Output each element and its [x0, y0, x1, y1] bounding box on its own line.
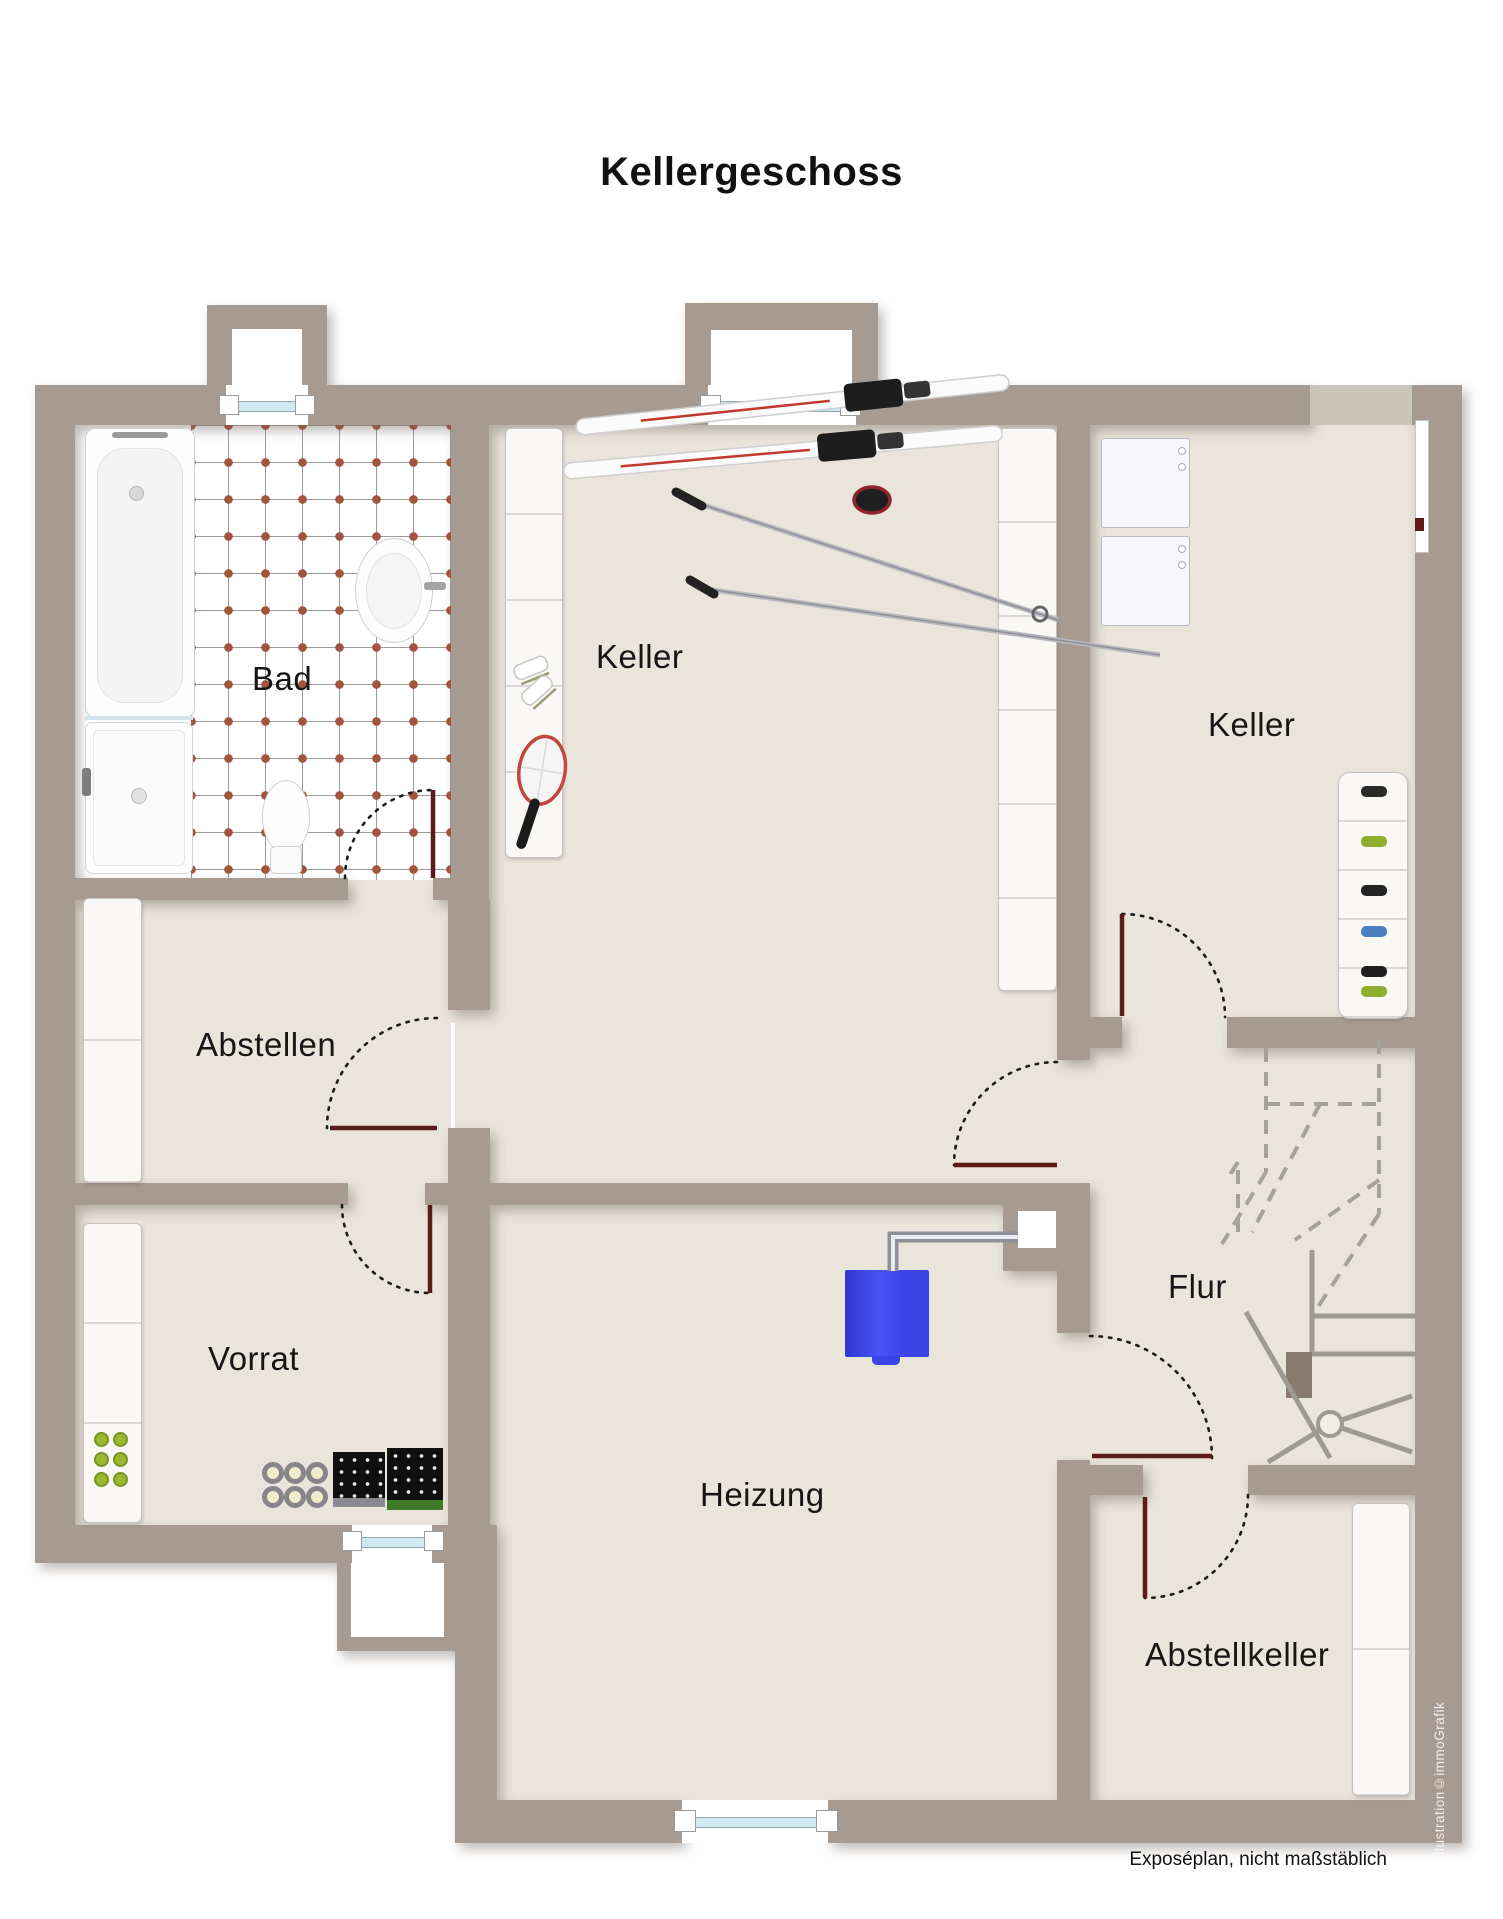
- lightshaft-vorrat-inner: [351, 1563, 444, 1637]
- bathtub-faucet-icon: [112, 432, 168, 438]
- jar-icon: [113, 1472, 128, 1487]
- room-label-abstellkeller: Abstellkeller: [1145, 1636, 1329, 1674]
- room-label-keller-mitte: Keller: [596, 638, 683, 676]
- room-label-flur: Flur: [1168, 1268, 1227, 1306]
- shelf-keller-right: [998, 428, 1057, 991]
- window-bad-glass: [229, 401, 305, 412]
- room-label-vorrat: Vorrat: [208, 1340, 299, 1378]
- shoes-green-icon: [1345, 985, 1403, 1003]
- boiler-tab: [872, 1356, 900, 1365]
- illustrator-watermark: illustration©immoGrafik: [1432, 1608, 1447, 1858]
- shoes-green-icon: [1345, 835, 1403, 853]
- window-heizung-jamb-right: [816, 1810, 838, 1832]
- door-top-right: [1415, 420, 1429, 553]
- window-heizung-jamb-left: [674, 1810, 696, 1832]
- wine-bottle-icon: [284, 1486, 306, 1508]
- wine-rack-base-green: [387, 1500, 443, 1510]
- wine-rack: [387, 1448, 443, 1506]
- window-bad-jamb-right: [295, 395, 315, 415]
- wine-rack-base: [333, 1498, 385, 1507]
- wine-bottle-icon: [306, 1462, 328, 1484]
- jar-icon: [113, 1432, 128, 1447]
- lightshaft-bad-inner: [232, 329, 302, 385]
- room-label-bad: Bad: [252, 660, 312, 698]
- wine-bottle-icon: [306, 1486, 328, 1508]
- shoes-blue-icon: [1345, 925, 1403, 943]
- room-label-heizung: Heizung: [700, 1476, 825, 1514]
- room-label-abstellen: Abstellen: [196, 1026, 336, 1064]
- window-keller-glass: [712, 401, 852, 412]
- shoes-black-icon: [1345, 785, 1403, 803]
- jar-icon: [94, 1432, 109, 1447]
- chimney-flue: [1018, 1211, 1056, 1248]
- window-heizung-glass: [690, 1817, 828, 1828]
- wine-bottle-icon: [284, 1462, 306, 1484]
- feature-layer: [0, 0, 1503, 1919]
- shoes-black-icon: [1345, 965, 1403, 983]
- sink-faucet-icon: [424, 582, 446, 590]
- toilet-bowl: [262, 780, 310, 854]
- scale-disclaimer: Exposéplan, nicht maßstäblich: [0, 1849, 1387, 1871]
- shower-glass: [85, 716, 193, 720]
- window-keller-jamb-left: [700, 395, 721, 416]
- shelf-keller-left: [505, 428, 563, 858]
- shelf-abstellen: [83, 898, 142, 1183]
- door-top-right-handle: [1415, 518, 1424, 531]
- boiler: [845, 1270, 929, 1357]
- lightshaft-keller-inner: [711, 330, 852, 385]
- page-title: Kellergeschoss: [0, 150, 1503, 195]
- shower-drain: [131, 788, 147, 804]
- shelf-abstellkeller: [1352, 1503, 1410, 1796]
- sink-basin: [366, 553, 422, 629]
- window-vorrat-jamb-right: [424, 1531, 444, 1551]
- shoes-black-icon: [1345, 884, 1403, 902]
- dryer: [1101, 536, 1190, 626]
- floorplan-kellergeschoss: Kellergeschoss Bad Keller Keller Abstell…: [0, 0, 1503, 1919]
- shoe-rack: [1338, 772, 1408, 1019]
- wine-rack: [333, 1452, 385, 1502]
- jar-icon: [94, 1452, 109, 1467]
- jar-icon: [113, 1452, 128, 1467]
- opening-top-right: [1310, 385, 1412, 425]
- room-label-keller-rechts: Keller: [1208, 706, 1295, 744]
- wine-bottle-icon: [262, 1486, 284, 1508]
- shower-faucet-icon: [82, 768, 91, 796]
- wine-bottle-icon: [262, 1462, 284, 1484]
- window-bad-jamb-left: [219, 395, 239, 415]
- toilet-tank: [270, 846, 302, 874]
- window-vorrat-jamb-left: [342, 1531, 362, 1551]
- washing-machine: [1101, 438, 1190, 528]
- window-keller-jamb-right: [840, 395, 861, 416]
- jar-icon: [94, 1472, 109, 1487]
- bathtub-drain: [129, 486, 144, 501]
- window-vorrat-glass: [354, 1537, 430, 1548]
